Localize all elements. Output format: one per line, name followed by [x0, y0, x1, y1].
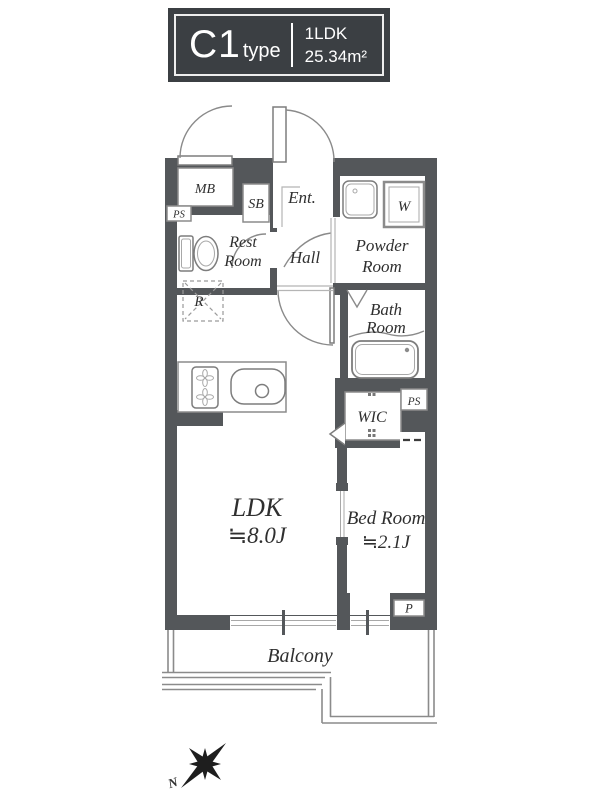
ps-right-label: PS	[407, 396, 421, 408]
sliding-door-handle	[336, 537, 348, 545]
sink-icon	[343, 181, 377, 218]
sb-label: SB	[248, 197, 264, 212]
pipe-label: P	[404, 602, 413, 616]
powder-room-label-1: Powder	[355, 236, 409, 255]
fridge-label: R	[193, 294, 203, 310]
floor-plan-page: C1 type 1LDK 25.34m²	[0, 0, 600, 800]
entrance-door	[273, 107, 286, 162]
balcony-railing	[162, 630, 437, 723]
kitchen-counter	[178, 362, 286, 412]
toilet-icon	[179, 236, 218, 271]
washer-label: W	[398, 199, 412, 215]
sliding-door-handle	[336, 483, 348, 491]
bedroom-label: Bed Room	[347, 508, 426, 529]
floor-plan: MB SB Ent. PS Rest Room Hall Powder Room…	[0, 0, 600, 800]
balcony-label: Balcony	[267, 645, 333, 667]
compass-rose	[181, 743, 226, 788]
ldk-label: LDK	[231, 493, 284, 522]
rest-room-label-1: Rest	[228, 234, 257, 251]
meter-box-door-arc	[180, 106, 232, 158]
powder-opening	[328, 217, 340, 283]
bedroom-window	[350, 616, 390, 630]
bath-room-label-1: Bath	[370, 300, 402, 319]
ldk-door	[330, 288, 334, 343]
kitchen-sink-icon	[231, 369, 285, 404]
entrance-label: Ent.	[287, 188, 316, 207]
ps-left-label: PS	[172, 210, 185, 221]
window-mullion	[366, 610, 369, 635]
ldk-area	[177, 295, 337, 615]
powder-room-label-2: Room	[361, 257, 402, 276]
bath-room-label-2: Room	[365, 318, 406, 337]
window-mullion	[282, 610, 285, 635]
wic-label: WIC	[357, 409, 387, 426]
north-label: N	[165, 774, 180, 792]
meter-box-door	[178, 156, 232, 165]
bedroom-size-label: ≒2.1J	[362, 532, 412, 553]
rest-room-label-2: Room	[223, 253, 261, 270]
hall-label: Hall	[289, 248, 321, 267]
entrance-door-arc	[286, 110, 334, 162]
stove-icon	[192, 367, 218, 408]
ldk-size-label: ≒8.0J	[228, 523, 288, 548]
mb-label: MB	[194, 182, 216, 197]
